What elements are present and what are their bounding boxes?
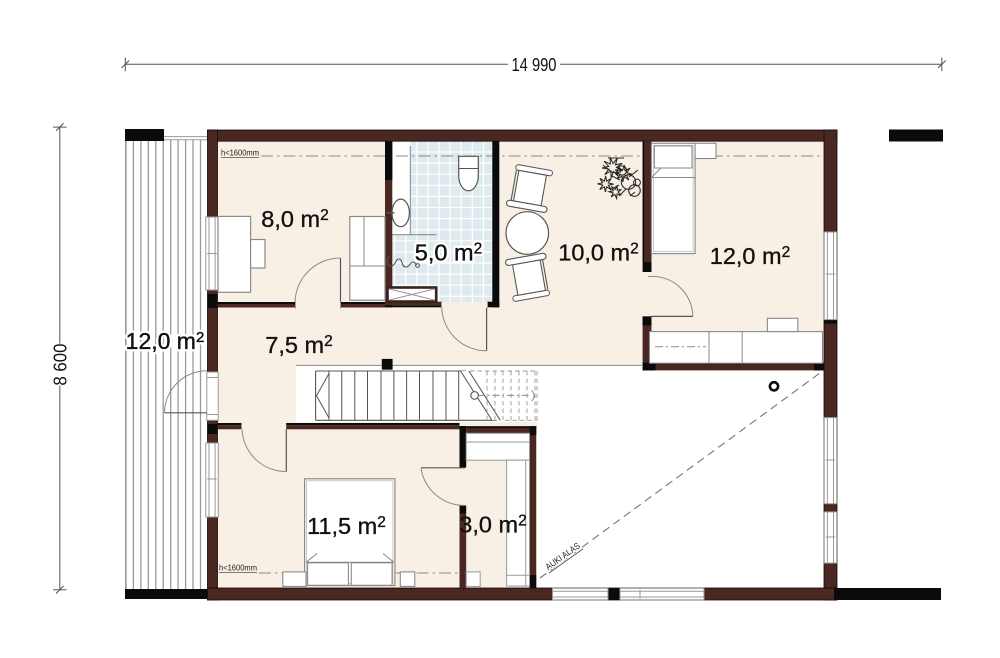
svg-text:7,5 m2: 7,5 m2 [265,332,332,358]
svg-text:8,0 m2: 8,0 m2 [261,206,328,232]
svg-text:h<1600mm: h<1600mm [219,563,257,573]
svg-text:14 990: 14 990 [512,55,557,75]
svg-text:h<1600mm: h<1600mm [221,148,259,158]
svg-text:11,5 m2: 11,5 m2 [307,513,386,539]
svg-text:3,0 m2: 3,0 m2 [459,512,526,538]
svg-text:5,0 m2: 5,0 m2 [415,240,482,266]
svg-text:10,0 m2: 10,0 m2 [558,240,638,266]
svg-text:12,0 m2: 12,0 m2 [710,243,790,269]
svg-text:8 600: 8 600 [51,344,71,386]
svg-text:12,0 m2: 12,0 m2 [126,328,205,354]
